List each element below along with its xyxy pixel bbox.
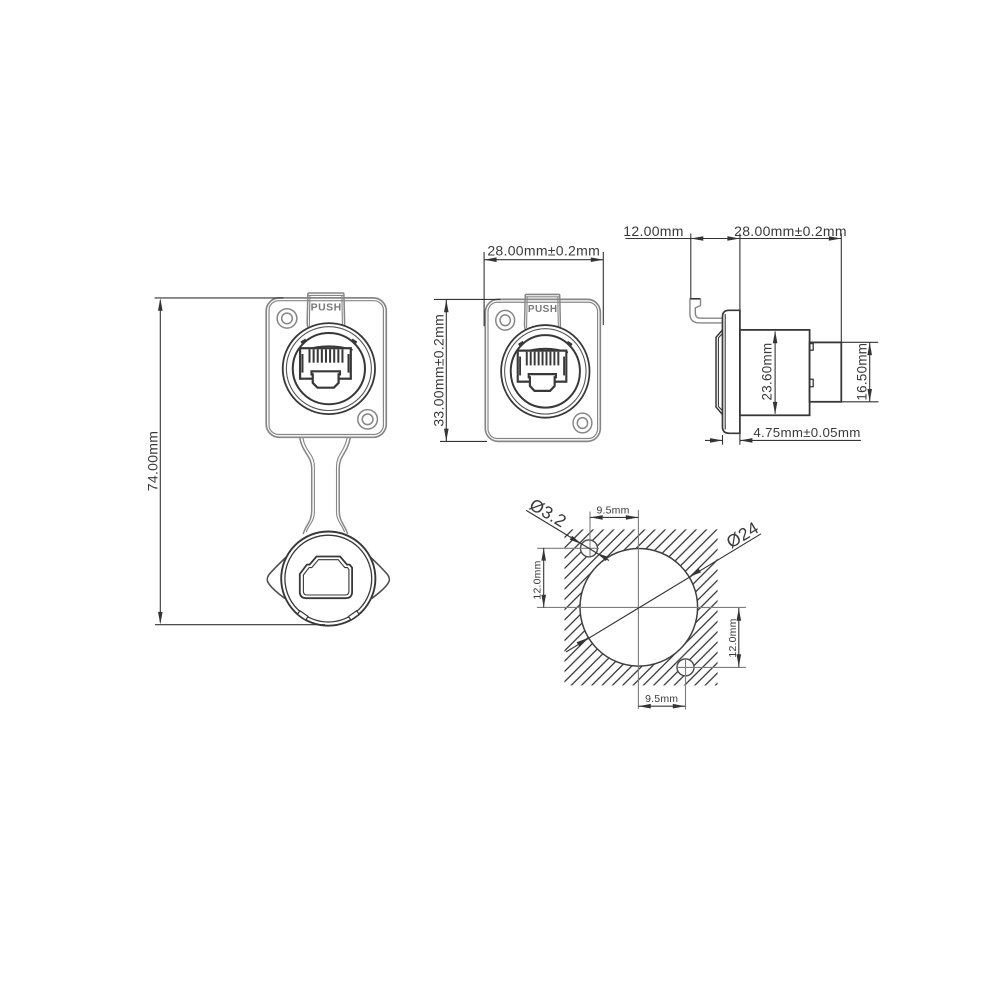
svg-text:28.00mm±0.2mm: 28.00mm±0.2mm (734, 223, 847, 239)
svg-text:16.50mm: 16.50mm (855, 343, 870, 401)
svg-text:28.00mm±0.2mm: 28.00mm±0.2mm (487, 242, 600, 258)
svg-text:12.00mm: 12.00mm (623, 223, 683, 239)
svg-text:PUSH: PUSH (528, 304, 558, 315)
svg-text:9.5mm: 9.5mm (596, 504, 629, 516)
svg-text:12.0mm: 12.0mm (727, 618, 739, 657)
svg-text:23.60mm: 23.60mm (760, 343, 775, 401)
svg-text:4.75mm±0.05mm: 4.75mm±0.05mm (753, 425, 860, 440)
svg-text:12.0mm: 12.0mm (532, 560, 544, 599)
svg-text:PUSH: PUSH (311, 302, 342, 313)
svg-text:74.00mm: 74.00mm (144, 431, 160, 491)
svg-text:9.5mm: 9.5mm (645, 693, 678, 705)
svg-text:33.00mm±0.2mm: 33.00mm±0.2mm (431, 314, 447, 427)
